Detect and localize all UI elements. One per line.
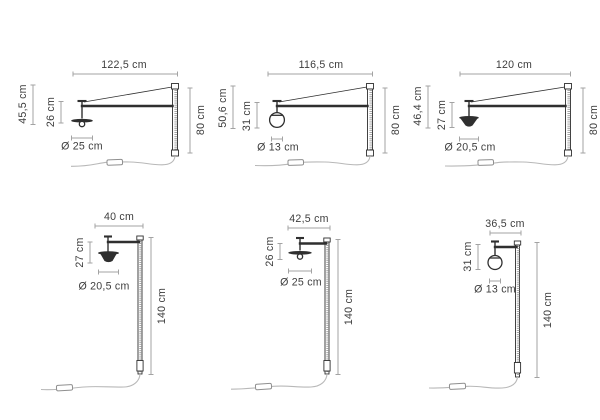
tension-cable (84, 87, 172, 102)
dim-diameter-label: Ø 20,5 cm (444, 142, 495, 154)
dim-height-label: 140 cm (343, 289, 355, 325)
height-dim-line (581, 88, 586, 153)
dim-height-label: 80 cm (390, 105, 402, 135)
power-cord (429, 377, 518, 388)
dim-diameter-label: Ø 25 cm (280, 277, 322, 289)
dim-inner-drop-label: 27 cm (74, 237, 86, 267)
inner-drop-dim-line (59, 102, 64, 124)
dim-height-label: 80 cm (588, 105, 600, 135)
width-dim-line (490, 231, 521, 236)
dim-inner-drop-label: 27 cm (436, 100, 448, 130)
power-cord (41, 374, 140, 390)
height-dim-line (149, 238, 154, 375)
inner-drop-dim-line (450, 103, 455, 128)
wall-bar (516, 245, 520, 377)
wall-bar-top-cap (324, 238, 330, 242)
dim-width-label: 36,5 cm (485, 218, 524, 230)
dim-outer-drop-label: 46,4 cm (412, 86, 424, 125)
diameter-dim-line (289, 269, 312, 274)
cone-shade (101, 254, 117, 262)
dim-width-label: 42,5 cm (289, 213, 328, 225)
wall-bar-bottom-cap (172, 150, 179, 156)
power-cord (71, 156, 175, 166)
dim-diameter-label: Ø 20,5 cm (78, 281, 129, 293)
dim-inner-drop-label: 31 cm (462, 241, 474, 271)
diagram-top-middle: 116,5 cm 80 cm 50,6 cm 31 cm Ø 13 cm (217, 59, 402, 166)
dimension-sheet-svg: 122,5 cm 80 cm 45,5 cm 26 cm Ø 25 cm 116… (0, 0, 600, 420)
height-dim-line (535, 243, 540, 378)
wall-bar-top-cap (137, 236, 143, 240)
dim-inner-drop-label: 26 cm (264, 236, 276, 266)
diagram-bottom-middle: 42,5 cm 140 cm 26 cm Ø 25 cm (231, 213, 355, 390)
diagram-bottom-left: 40 cm 140 cm 27 cm Ø 20,5 cm (41, 211, 168, 391)
driver-box (137, 361, 143, 372)
dim-width-label: 40 cm (104, 211, 134, 223)
dim-outer-drop-label: 50,6 cm (217, 88, 229, 127)
cord-switch (449, 383, 465, 389)
tension-cable (471, 87, 565, 102)
cord-switch (255, 383, 271, 390)
bulb (297, 254, 302, 259)
diagram-bottom-right: 36,5 cm 140 cm 31 cm Ø 13 cm (429, 218, 554, 390)
width-dim-line (95, 224, 143, 229)
power-cord (231, 374, 327, 389)
height-dim-line (188, 88, 193, 153)
wall-bar-top-cap (565, 84, 572, 90)
wall-bar-top-cap (514, 241, 520, 245)
diameter-dim-line (99, 270, 119, 275)
dim-inner-drop-label: 31 cm (241, 101, 253, 131)
dim-inner-drop-label: 26 cm (45, 97, 57, 127)
width-dim-line (460, 72, 571, 77)
width-dim-line (268, 72, 373, 77)
dim-outer-drop-label: 45,5 cm (17, 84, 29, 123)
diagram-top-left: 122,5 cm 80 cm 45,5 cm 26 cm Ø 25 cm (17, 59, 207, 166)
outer-drop-dim-line (31, 85, 36, 125)
wall-bar-top-cap (367, 84, 374, 90)
cone-shade (461, 119, 478, 127)
power-cord (255, 156, 370, 166)
height-dim-line (383, 88, 388, 153)
outer-drop-dim-line (231, 86, 236, 129)
wall-bar (325, 242, 329, 374)
dim-width-label: 116,5 cm (299, 59, 344, 71)
tension-cable (279, 87, 367, 102)
dim-diameter-label: Ø 25 cm (61, 141, 103, 153)
width-dim-line (288, 226, 330, 231)
dim-height-label: 140 cm (156, 288, 168, 324)
cord-switch (288, 160, 304, 166)
inner-drop-dim-line (88, 242, 93, 263)
cord-switch (56, 385, 72, 391)
dim-width-label: 120 cm (496, 59, 532, 71)
outer-drop-dim-line (426, 86, 431, 128)
dim-width-label: 122,5 cm (101, 59, 147, 71)
diagram-top-right: 120 cm 80 cm 46,4 cm 27 cm Ø 20,5 cm (412, 59, 600, 166)
driver-box (514, 363, 520, 374)
wall-bar-top-cap (172, 84, 179, 90)
inner-drop-dim-line (476, 245, 481, 270)
driver-box (324, 361, 330, 372)
power-cord (445, 156, 568, 166)
dimension-sheet: 122,5 cm 80 cm 45,5 cm 26 cm Ø 25 cm 116… (0, 0, 600, 420)
dim-height-label: 140 cm (542, 292, 554, 328)
dim-diameter-label: Ø 13 cm (257, 142, 299, 154)
cord-switch (478, 160, 494, 166)
wall-bar-bottom-cap (565, 150, 572, 156)
height-dim-line (336, 240, 341, 375)
inner-drop-dim-line (255, 103, 260, 129)
dim-diameter-label: Ø 13 cm (474, 284, 516, 296)
wall-bar-bottom-cap (367, 150, 374, 156)
cord-switch (107, 159, 123, 165)
width-dim-line (73, 72, 178, 77)
inner-drop-dim-line (278, 244, 283, 260)
bulb (79, 121, 84, 126)
dim-height-label: 80 cm (195, 105, 207, 135)
